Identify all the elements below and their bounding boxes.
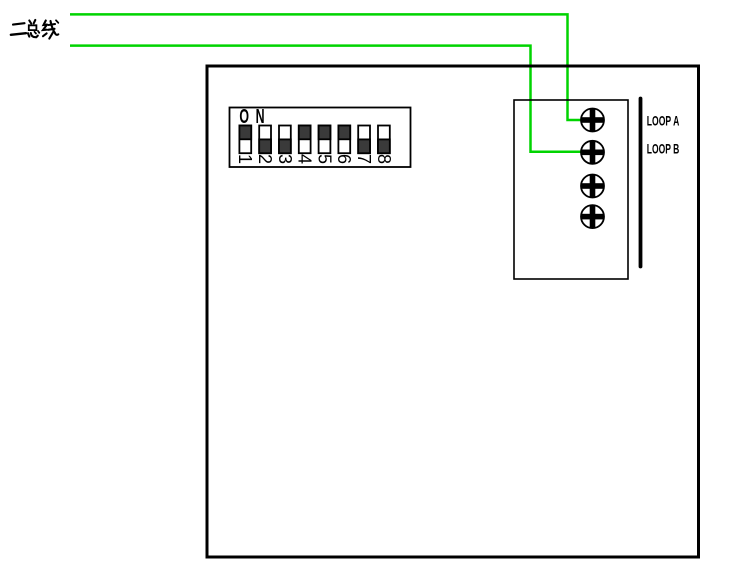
svg-text:ON: ON — [239, 105, 271, 128]
svg-text:5: 5 — [314, 154, 334, 164]
svg-text:8: 8 — [374, 154, 394, 164]
svg-text:2: 2 — [255, 154, 275, 164]
svg-text:LOOP B: LOOP B — [647, 140, 680, 156]
svg-text:6: 6 — [334, 154, 354, 164]
svg-text:1: 1 — [235, 154, 255, 164]
svg-text:LOOP A: LOOP A — [647, 112, 680, 128]
svg-text:4: 4 — [295, 154, 315, 164]
svg-text:3: 3 — [275, 154, 295, 164]
svg-text:7: 7 — [354, 154, 374, 164]
